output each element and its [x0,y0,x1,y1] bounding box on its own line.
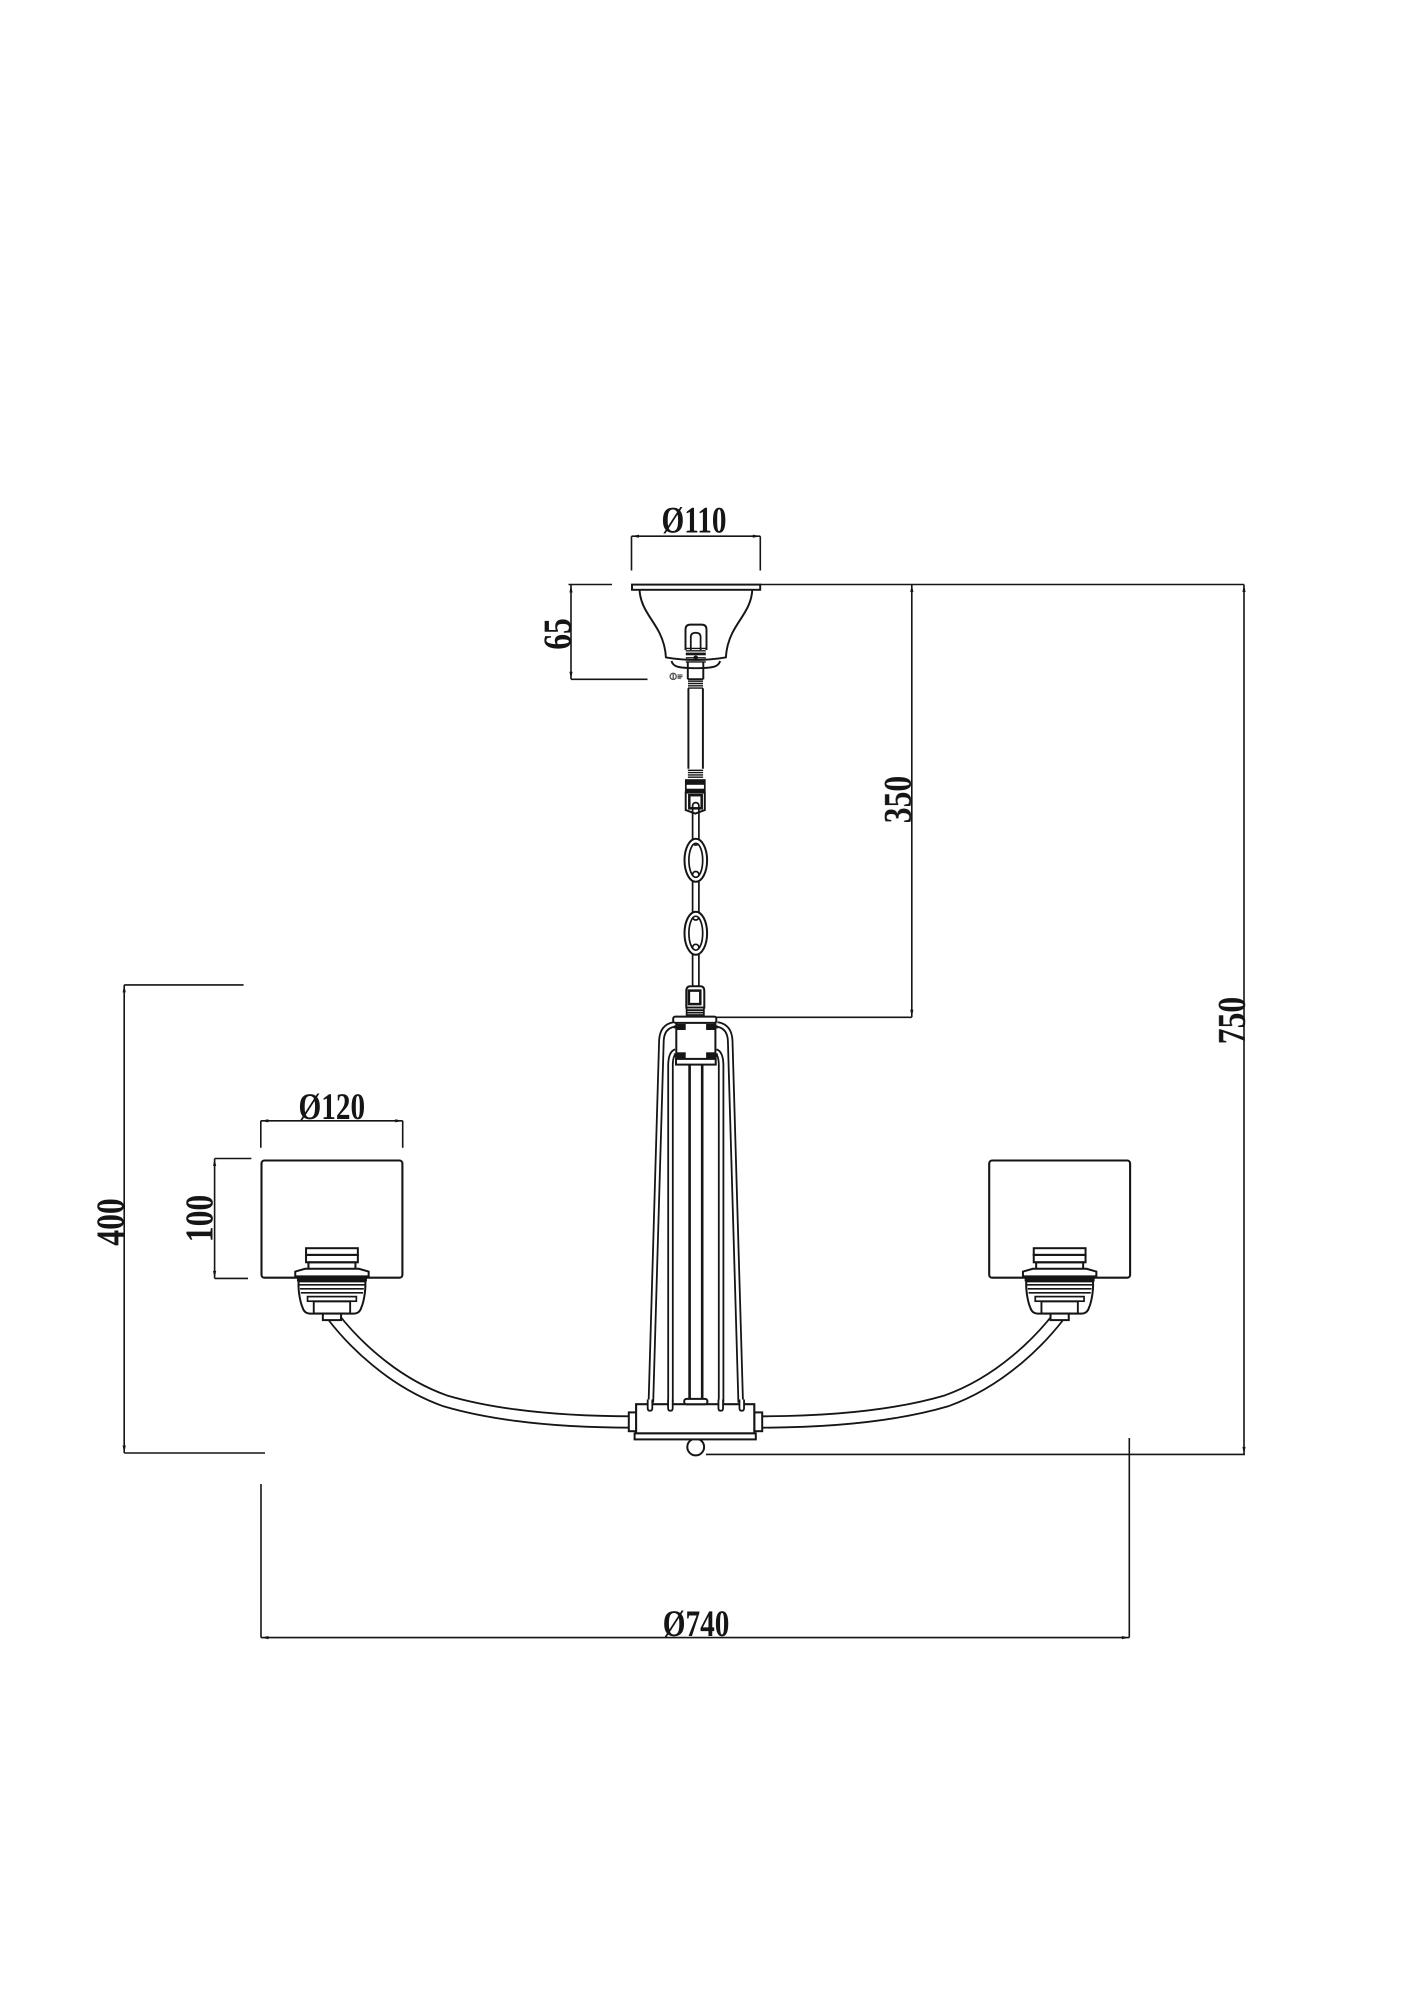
svg-text:Ø740: Ø740 [663,1604,730,1645]
svg-text:Ø110: Ø110 [661,501,726,542]
svg-text:750: 750 [1210,997,1254,1044]
svg-text:Ø120: Ø120 [298,1087,365,1128]
svg-text:100: 100 [178,1195,222,1242]
svg-text:65: 65 [535,618,579,650]
svg-text:350: 350 [876,776,920,823]
svg-text:400: 400 [88,1198,132,1245]
